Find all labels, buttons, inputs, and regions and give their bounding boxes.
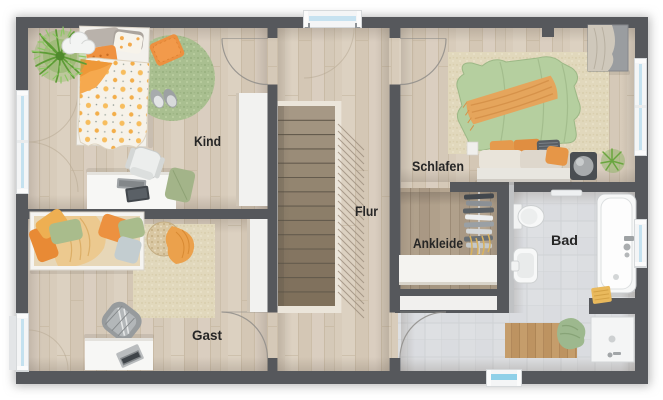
svg-text:Ankleide: Ankleide [413,236,463,251]
svg-text:Kind: Kind [194,134,221,149]
svg-text:Schlafen: Schlafen [412,159,464,174]
svg-text:Gast: Gast [192,328,223,343]
svg-text:Bad: Bad [551,233,578,248]
svg-text:Flur: Flur [355,204,379,219]
